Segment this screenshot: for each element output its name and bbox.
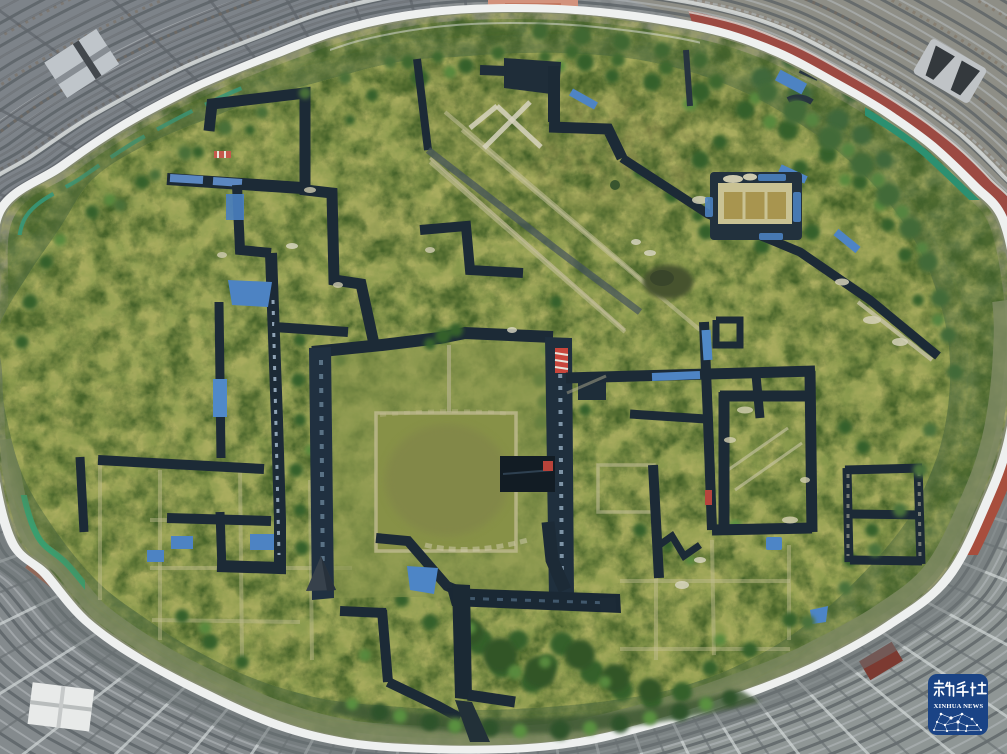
- svg-text:XINHUA NEWS: XINHUA NEWS: [934, 703, 984, 710]
